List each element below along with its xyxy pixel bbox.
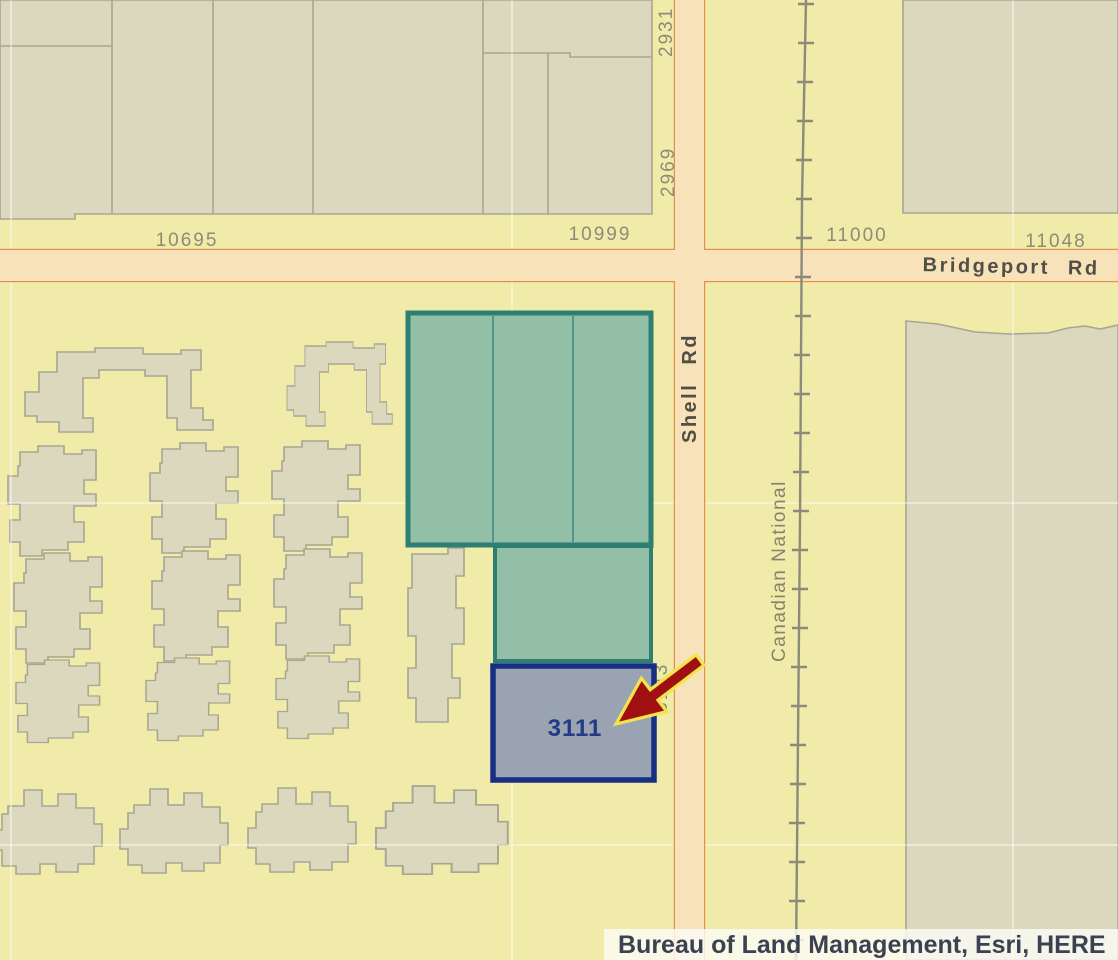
building-footprint [14, 553, 102, 663]
building-footprint [903, 0, 1118, 213]
map-canvas[interactable]: 3143 3111 10695 10999 11000 11048 2969 2… [0, 0, 1118, 960]
building-footprint [272, 441, 360, 551]
building-footprint [276, 656, 360, 739]
shell-road [675, 0, 704, 960]
parcel-number-label: 3111 [548, 715, 603, 742]
building-footprint [152, 551, 240, 661]
label-address-10999: 10999 [569, 224, 632, 245]
label-address-11048: 11048 [1025, 231, 1086, 252]
label-address-10695: 10695 [156, 230, 219, 251]
building-footprint [16, 660, 100, 743]
label-canadian-national: Canadian National [769, 480, 790, 662]
green-parcel-south[interactable] [495, 546, 651, 661]
building-footprint [146, 658, 230, 741]
attribution-text: Bureau of Land Management, Esri, HERE [618, 931, 1106, 959]
label-shell-rd: Shell Rd [679, 333, 701, 443]
building-footprint [8, 446, 96, 556]
building-footprint [408, 548, 464, 722]
attribution-bar: Bureau of Land Management, Esri, HERE [604, 929, 1118, 960]
building-footprint [150, 443, 238, 553]
label-address-11000: 11000 [826, 225, 887, 246]
green-parcel-block[interactable] [408, 313, 651, 545]
label-address-2969: 2969 [658, 147, 679, 197]
building-footprint [274, 549, 362, 659]
label-address-2931: 2931 [656, 7, 677, 57]
label-bridgeport-rd: Bridgeport Rd [922, 254, 1099, 280]
building-footprint [0, 0, 652, 219]
